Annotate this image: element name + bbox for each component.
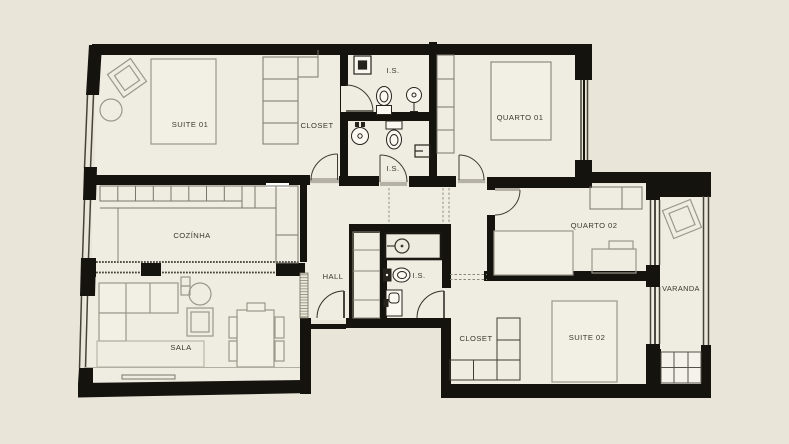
svg-text:CLOSET: CLOSET <box>300 121 333 130</box>
svg-text:HALL: HALL <box>323 272 344 281</box>
svg-text:I.S.: I.S. <box>386 66 399 75</box>
svg-text:CLOSET: CLOSET <box>459 334 492 343</box>
svg-text:I.S.: I.S. <box>386 164 399 173</box>
svg-text:VARANDA: VARANDA <box>662 284 700 293</box>
svg-text:QUARTO 01: QUARTO 01 <box>497 113 544 122</box>
svg-text:COZÍNHA: COZÍNHA <box>173 231 211 240</box>
svg-text:QUARTO 02: QUARTO 02 <box>571 221 618 230</box>
svg-text:I.S.: I.S. <box>412 271 425 280</box>
svg-text:SUITE 01: SUITE 01 <box>172 120 209 129</box>
svg-text:SUITE 02: SUITE 02 <box>569 333 606 342</box>
svg-text:SALA: SALA <box>170 343 192 352</box>
